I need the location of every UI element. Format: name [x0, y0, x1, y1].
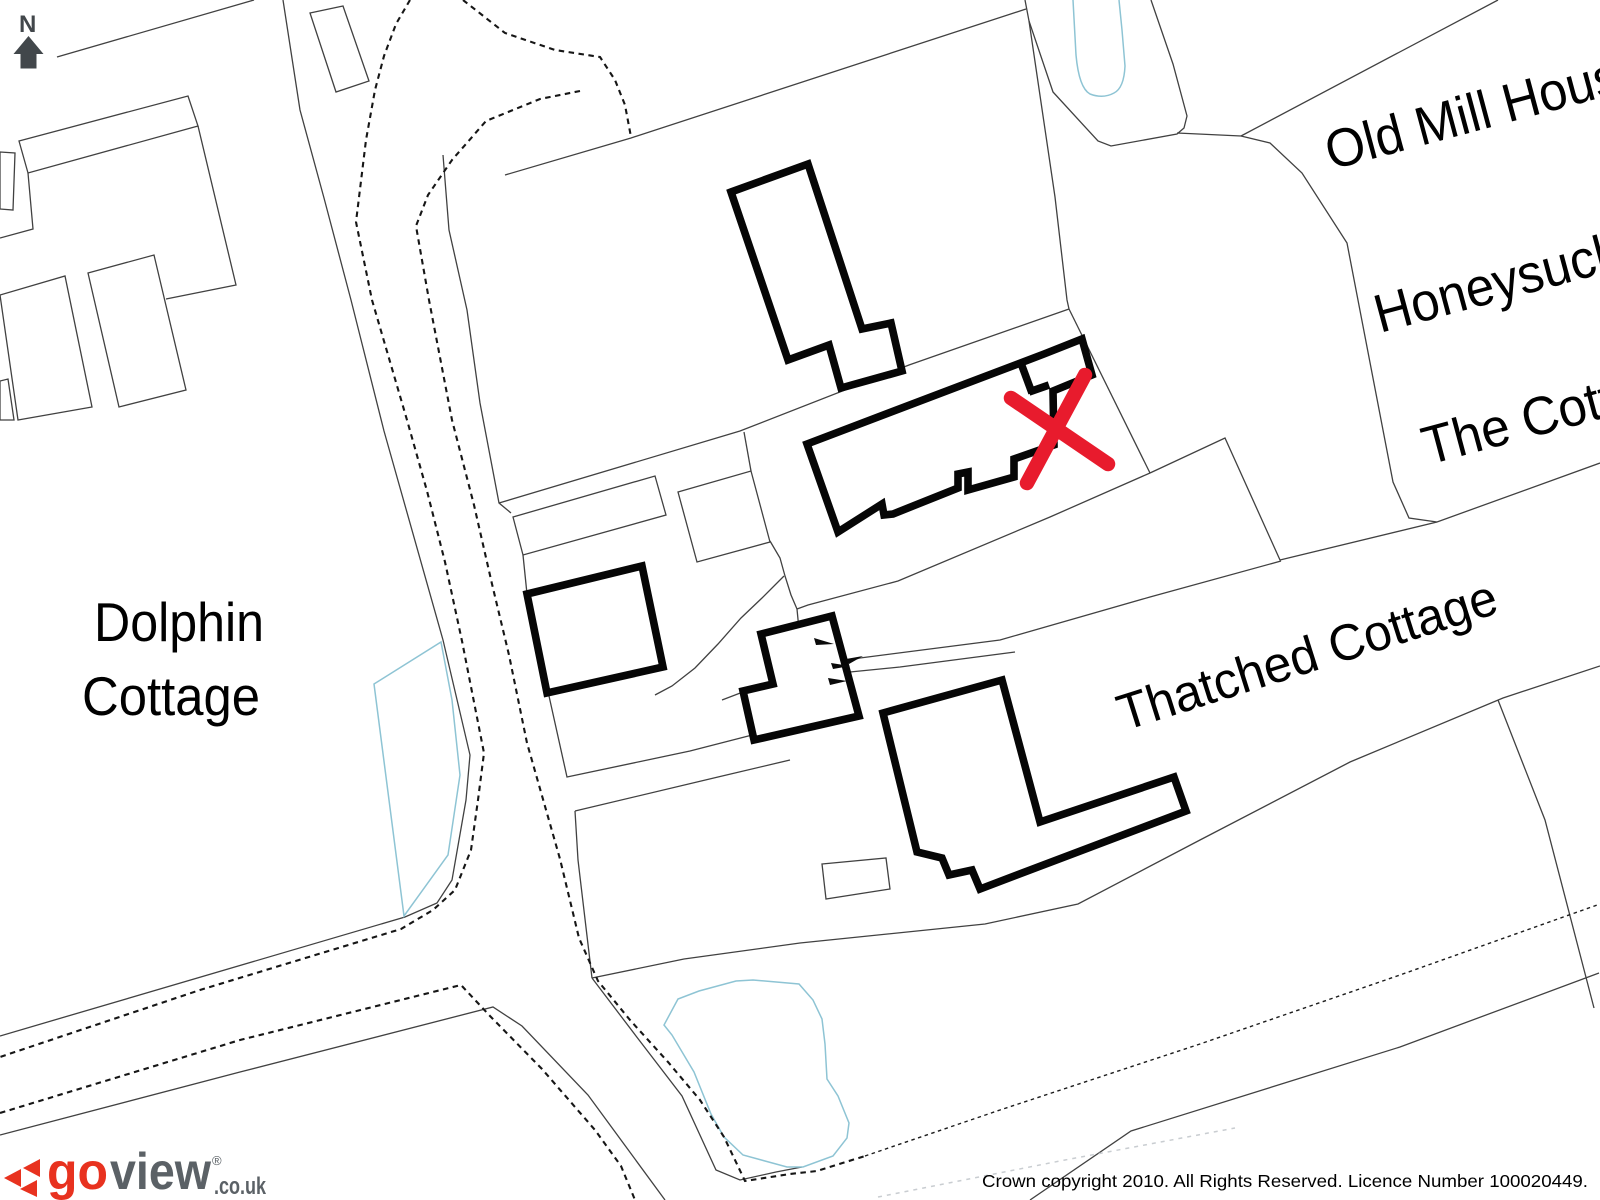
svg-text:Cottage: Cottage	[82, 665, 260, 727]
svg-text:Dolphin: Dolphin	[94, 591, 264, 653]
svg-text:.co.uk: .co.uk	[214, 1173, 266, 1200]
svg-text:Crown copyright 2010. All Righ: Crown copyright 2010. All Rights Reserve…	[982, 1171, 1588, 1191]
svg-text:N: N	[19, 11, 36, 38]
svg-text:view: view	[110, 1143, 211, 1200]
svg-text:go: go	[47, 1143, 108, 1200]
svg-text:®: ®	[212, 1153, 222, 1168]
